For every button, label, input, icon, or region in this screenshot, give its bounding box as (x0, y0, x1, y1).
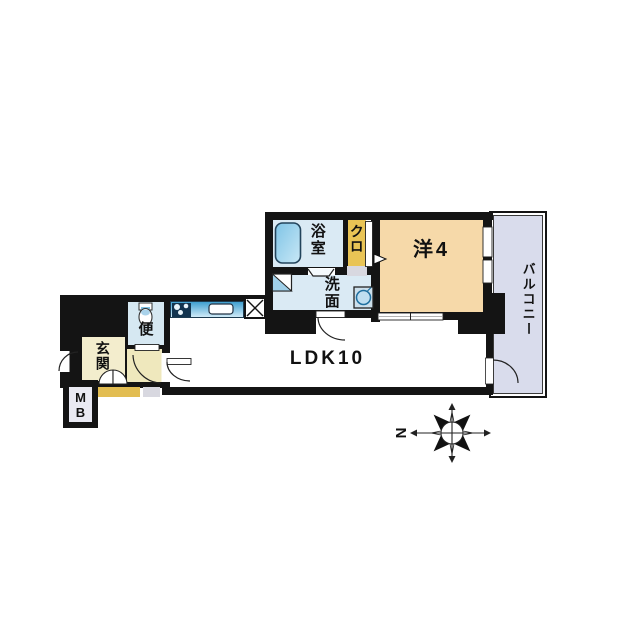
washroom-door-arc (318, 318, 345, 341)
ldk-door-arc (167, 362, 190, 381)
compass-arrow-n (449, 403, 456, 410)
wall-bottom (162, 387, 493, 395)
kitchen-counter (170, 301, 244, 318)
compass-rose-icon: N (393, 403, 491, 463)
balcony-label: バルコニー (521, 262, 535, 337)
bathroom (273, 220, 343, 267)
meter-box-letter-b: B (76, 405, 85, 420)
compass-arrow-w (410, 430, 417, 437)
compass-point-se (455, 436, 471, 452)
washroom-label: 洗面 (323, 276, 339, 310)
compass-point-ne (455, 415, 471, 431)
washroom (273, 275, 371, 310)
compass-spike-s (448, 434, 456, 454)
vanity-counter (347, 266, 367, 276)
crossed-box-icon (244, 297, 266, 319)
hallway (127, 349, 162, 382)
compass-spike-w (431, 429, 451, 437)
compass-point-nw (434, 415, 450, 431)
porch-step-gold (98, 387, 140, 397)
wall-ldk-right (486, 330, 493, 395)
compass-point-sw (434, 436, 450, 452)
compass-arrow-e (484, 430, 491, 437)
ldk-label: LDK10 (265, 349, 390, 369)
western-room (380, 220, 483, 312)
meter-box: M B (68, 386, 93, 423)
toilet-label: 便 (128, 322, 164, 338)
compass-spike-e (453, 429, 473, 437)
compass-circle (441, 422, 463, 444)
bathroom-label: 浴室 (309, 223, 325, 257)
compass-arrow-s (449, 456, 456, 463)
ldk-door-leaf (167, 359, 191, 365)
entrance-label: 玄関 (95, 341, 110, 371)
floor-plan: M B (0, 0, 621, 638)
porch-step-gray (143, 387, 160, 397)
compass-spike-n (448, 412, 456, 432)
meter-box-letter-m: M (75, 390, 86, 405)
compass-north-label: N (393, 428, 410, 439)
western-room-label: 洋4 (380, 240, 483, 261)
closet-label: クロ (349, 224, 364, 254)
